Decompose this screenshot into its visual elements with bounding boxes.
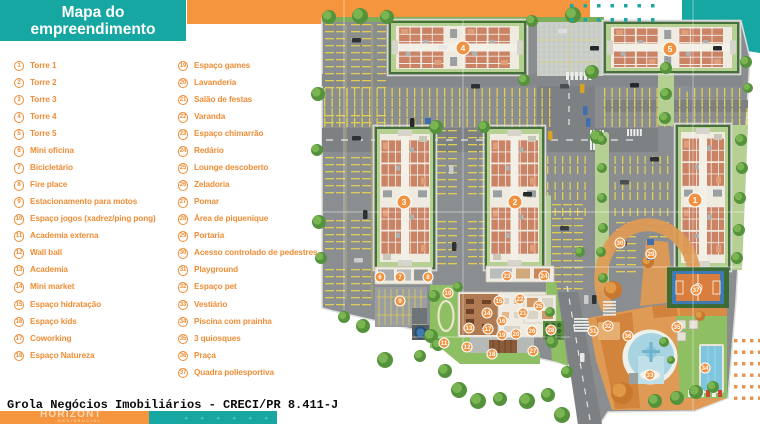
svg-text:4: 4 xyxy=(461,43,466,53)
svg-text:6: 6 xyxy=(378,274,382,281)
svg-text:17: 17 xyxy=(485,326,492,333)
svg-text:9: 9 xyxy=(398,298,402,305)
svg-text:5: 5 xyxy=(668,44,673,54)
svg-text:30: 30 xyxy=(617,240,624,247)
svg-text:36: 36 xyxy=(625,333,632,340)
svg-text:2: 2 xyxy=(513,197,518,207)
svg-text:15: 15 xyxy=(496,298,503,305)
svg-text:13: 13 xyxy=(466,325,473,332)
svg-text:20: 20 xyxy=(513,331,520,338)
svg-text:32: 32 xyxy=(605,323,612,330)
svg-text:35: 35 xyxy=(674,324,681,331)
svg-text:11: 11 xyxy=(441,340,448,347)
svg-text:25: 25 xyxy=(536,303,543,310)
svg-text:21: 21 xyxy=(520,310,527,317)
svg-text:3: 3 xyxy=(402,197,407,207)
svg-text:8: 8 xyxy=(426,274,430,281)
svg-text:16: 16 xyxy=(499,318,506,325)
svg-text:26: 26 xyxy=(529,328,536,335)
svg-text:28: 28 xyxy=(548,327,555,334)
svg-text:14: 14 xyxy=(484,310,491,317)
svg-text:12: 12 xyxy=(464,344,471,351)
svg-text:22: 22 xyxy=(517,296,524,303)
svg-text:31: 31 xyxy=(590,328,597,335)
svg-text:10: 10 xyxy=(445,290,452,297)
svg-text:29: 29 xyxy=(648,251,655,258)
svg-text:19: 19 xyxy=(499,332,506,339)
svg-text:1: 1 xyxy=(693,195,698,205)
svg-text:18: 18 xyxy=(489,351,496,358)
svg-text:7: 7 xyxy=(398,274,402,281)
svg-text:27: 27 xyxy=(530,348,537,355)
svg-text:34: 34 xyxy=(702,365,709,372)
svg-text:37: 37 xyxy=(693,287,700,294)
svg-text:24: 24 xyxy=(541,273,548,280)
svg-text:33: 33 xyxy=(647,372,654,379)
svg-text:23: 23 xyxy=(504,273,511,280)
